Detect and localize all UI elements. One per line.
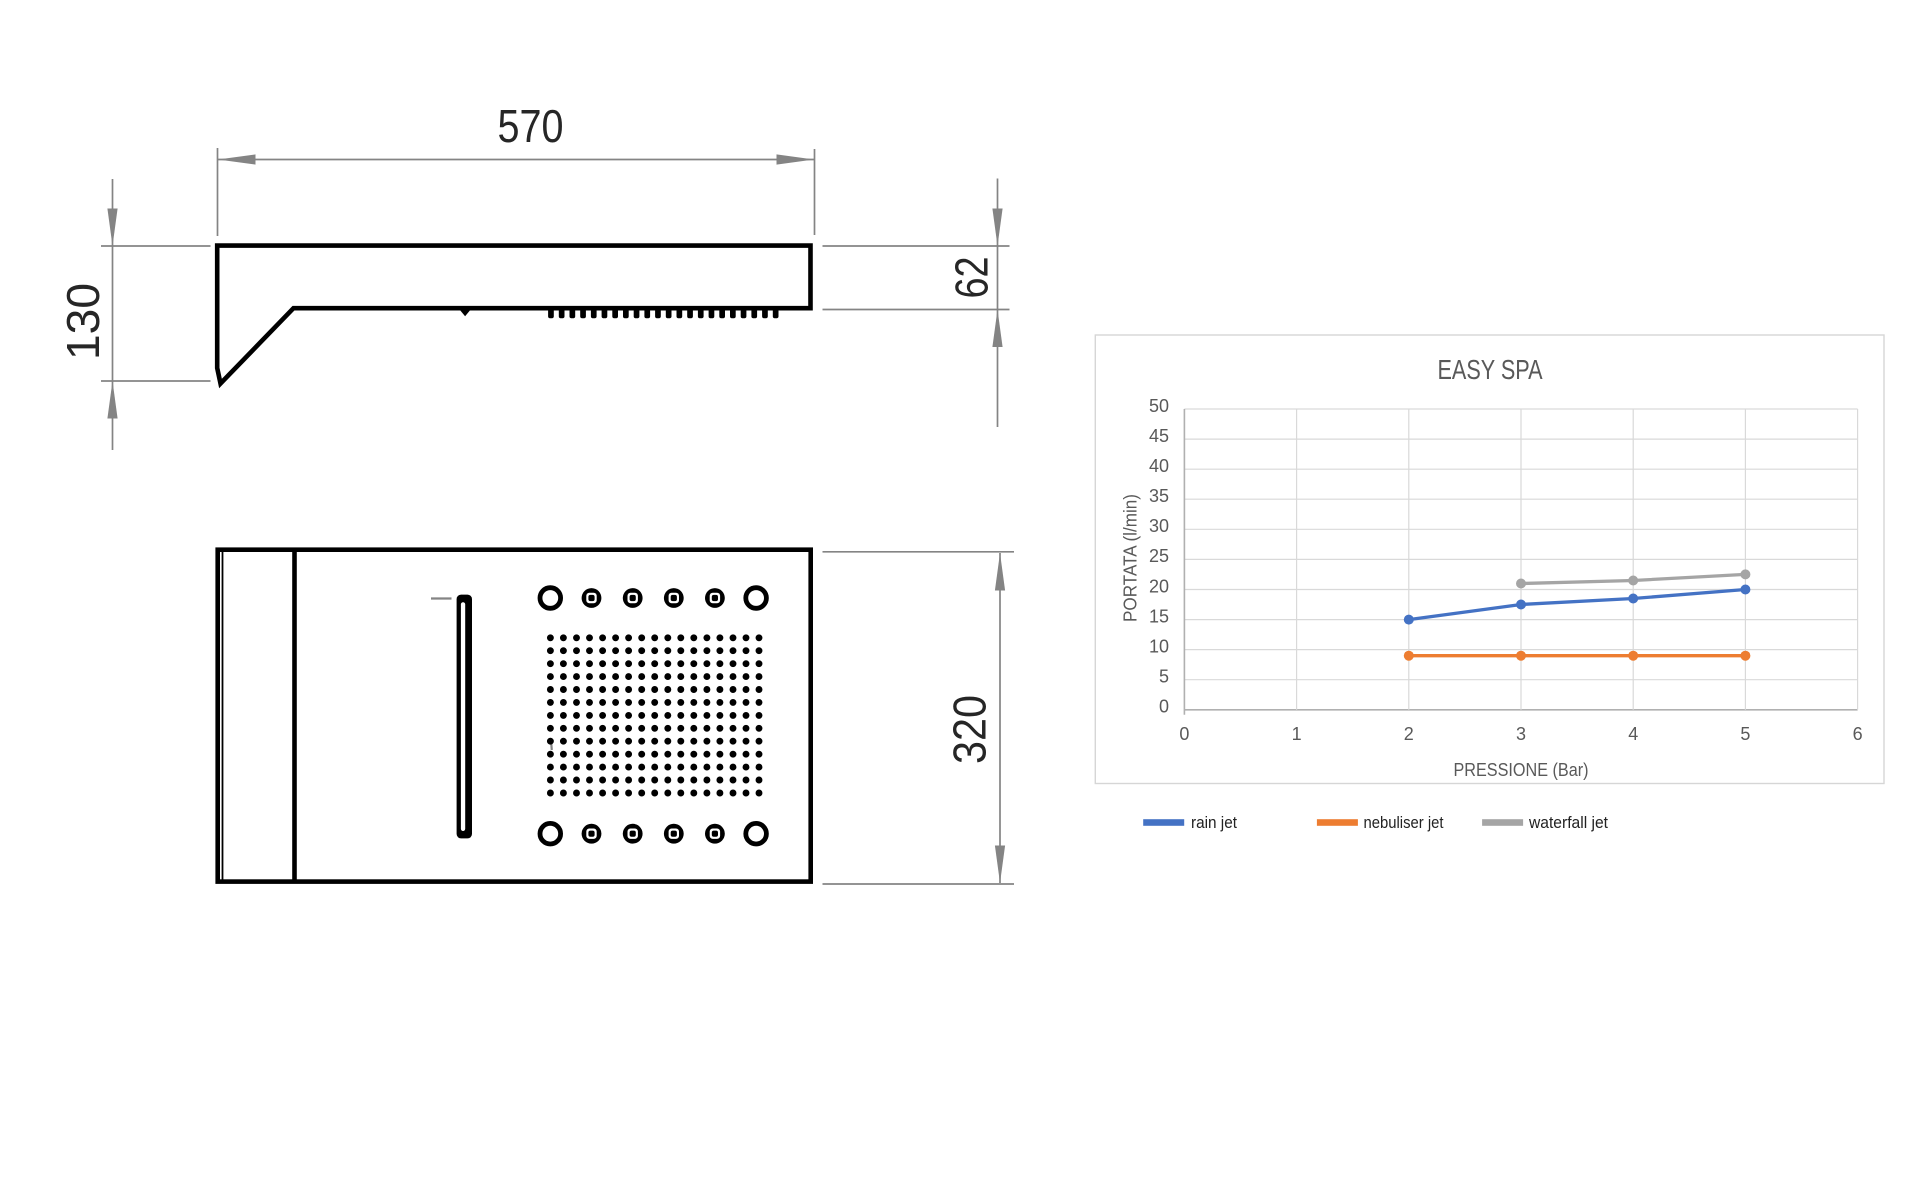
svg-text:45: 45 xyxy=(1149,426,1169,446)
svg-text:62: 62 xyxy=(946,257,998,299)
svg-text:rain jet: rain jet xyxy=(1191,813,1237,832)
svg-text:4: 4 xyxy=(1628,724,1638,744)
svg-text:320: 320 xyxy=(944,695,996,764)
svg-text:1: 1 xyxy=(1292,724,1302,744)
svg-text:5: 5 xyxy=(1740,724,1750,744)
svg-text:40: 40 xyxy=(1149,456,1169,476)
svg-text:15: 15 xyxy=(1149,606,1169,626)
svg-text:30: 30 xyxy=(1149,516,1169,536)
svg-text:6: 6 xyxy=(1853,724,1863,744)
svg-text:PRESSIONE (Bar): PRESSIONE (Bar) xyxy=(1454,760,1589,780)
svg-text:0: 0 xyxy=(1179,724,1189,744)
svg-text:130: 130 xyxy=(57,283,109,360)
svg-text:PORTATA (l/min): PORTATA (l/min) xyxy=(1120,494,1140,622)
svg-text:25: 25 xyxy=(1149,546,1169,566)
svg-text:2: 2 xyxy=(1404,724,1414,744)
svg-text:570: 570 xyxy=(498,100,564,152)
svg-text:waterfall jet: waterfall jet xyxy=(1528,813,1608,832)
svg-text:35: 35 xyxy=(1149,486,1169,506)
svg-text:20: 20 xyxy=(1149,576,1169,596)
svg-text:nebuliser jet: nebuliser jet xyxy=(1364,813,1444,832)
svg-text:5: 5 xyxy=(1159,666,1169,686)
svg-text:0: 0 xyxy=(1159,697,1169,717)
svg-text:EASY SPA: EASY SPA xyxy=(1438,354,1543,385)
svg-text:10: 10 xyxy=(1149,636,1169,656)
svg-text:50: 50 xyxy=(1149,396,1169,416)
svg-text:3: 3 xyxy=(1516,724,1526,744)
